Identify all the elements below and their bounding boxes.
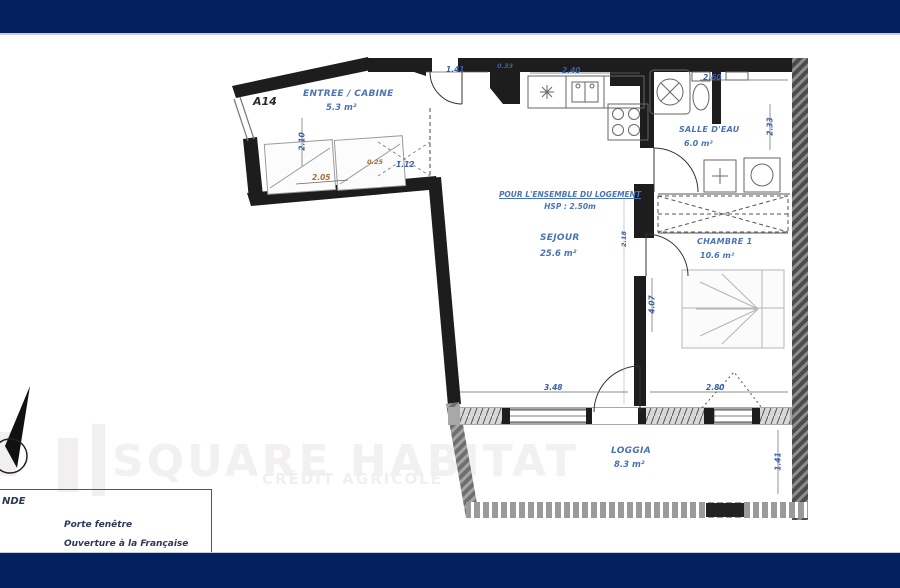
dim-kitchen: 2.40 <box>562 66 581 75</box>
closet-icon <box>658 196 788 232</box>
loggia-door-arc <box>594 366 640 412</box>
room-area-salle-eau: 6.0 m² <box>684 140 713 149</box>
loggia-railing <box>466 502 808 518</box>
dim-bath-width: 2.60 <box>703 73 722 82</box>
right-wall <box>792 58 808 520</box>
window-band <box>448 407 792 425</box>
ceiling-note-line1: POUR L'ENSEMBLE DU LOGEMENT <box>488 190 652 199</box>
room-name-entree: ENTREE / CABINE <box>303 90 394 100</box>
room-name-loggia: LOGGIA <box>611 447 651 457</box>
room-name-chambre: CHAMBRE 1 <box>697 238 753 247</box>
duct-shaft <box>490 70 520 104</box>
floorplan-page: SQUARE HABITAT CRÉDIT AGRICOLE <box>0 0 900 588</box>
bedroom-window <box>714 410 754 422</box>
dim-cabine-closet: 1.12 <box>396 160 415 169</box>
shower-icon <box>650 70 690 114</box>
entry-door-arc <box>430 72 462 104</box>
room-area-loggia: 8.3 m² <box>614 461 645 470</box>
ceiling-note-line2: HSP : 2.50m <box>488 202 652 211</box>
bathroom-door-arc <box>654 148 698 192</box>
washing-machine-icon <box>704 160 736 192</box>
legend-item-ouverture: Ouverture à la Française <box>64 539 188 549</box>
legend-item-porte-fenetre: Porte fenêtre <box>64 520 132 530</box>
bed-icon <box>682 270 784 348</box>
bunk-beds-icon <box>264 136 405 195</box>
unit-label: A14 <box>253 95 277 108</box>
top-banner-bar <box>0 0 900 35</box>
fridge-icon <box>540 85 554 99</box>
room-name-sejour: SEJOUR <box>540 234 580 244</box>
sliding-window <box>508 410 588 422</box>
dim-chambre-width: 2.80 <box>706 383 725 392</box>
shelf-icon <box>726 72 748 80</box>
bathroom-sink-icon <box>744 158 780 192</box>
legend-title-partial: NDE <box>2 496 26 507</box>
dim-bath-depth: 2.33 <box>766 112 775 142</box>
room-name-salle-eau: SALLE D'EAU <box>679 126 740 135</box>
dim-duct: 0.33 <box>497 62 513 70</box>
kitchen-sink-icon <box>572 82 598 102</box>
room-area-chambre: 10.6 m² <box>700 252 734 261</box>
compass-north-icon <box>0 386 30 473</box>
loggia-post <box>706 503 744 517</box>
dim-cabine-width: 2.05 <box>312 173 331 182</box>
dim-cabine-small: 0.25 <box>367 158 383 166</box>
bottom-banner-bar <box>0 552 900 588</box>
dim-entry: 1.41 <box>446 65 465 74</box>
dim-sejour-width: 3.48 <box>544 383 563 392</box>
room-area-sejour: 25.6 m² <box>540 250 577 259</box>
dim-cabine-depth: 2.10 <box>298 127 307 157</box>
dim-chambre-depth: 4.07 <box>648 290 657 320</box>
room-area-entree: 5.3 m² <box>326 104 357 113</box>
dim-loggia-depth: 1.41 <box>774 447 783 477</box>
dim-mid: 2.18 <box>620 224 628 254</box>
